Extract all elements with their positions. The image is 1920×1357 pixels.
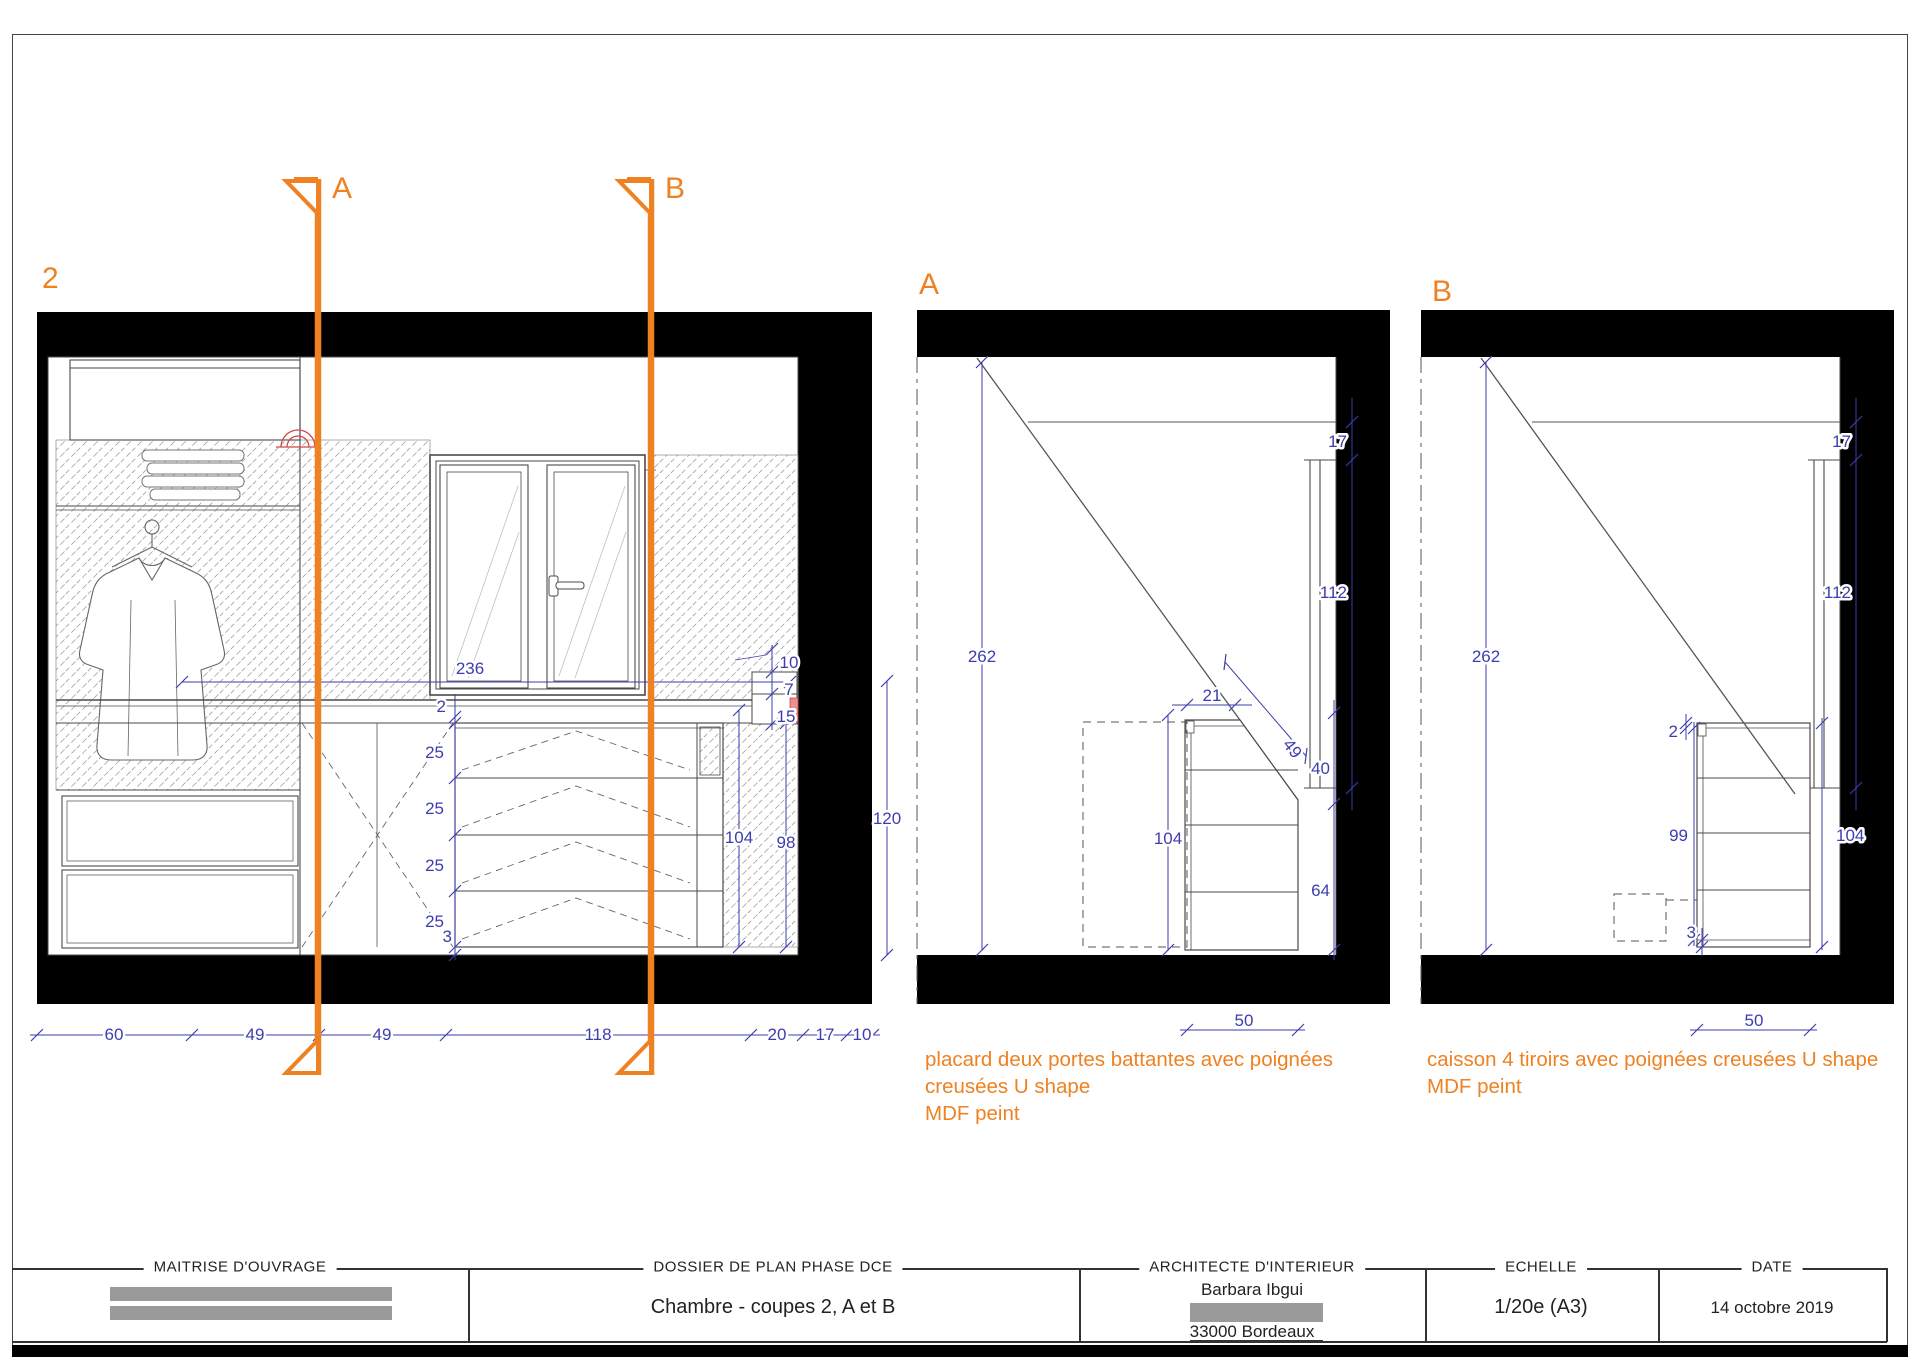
dim-drawer-1: 25	[425, 743, 444, 762]
section2-label: 2	[42, 262, 59, 296]
dim-sill-height: 120	[873, 809, 901, 828]
sectionA-note-line1: placard deux portes battantes avec poign…	[925, 1046, 1333, 1073]
b-dim-99: 99	[1669, 826, 1688, 845]
b-dim-50: 50	[1745, 1011, 1764, 1030]
tb-architect-redacted	[1190, 1303, 1323, 1322]
a-side-panel	[1304, 460, 1336, 788]
dim-drawer-3: 25	[425, 856, 444, 875]
tb-sheet-title: Chambre - coupes 2, A et B	[651, 1296, 896, 1319]
tb-bottom-bar	[12, 1345, 1908, 1357]
wall-right-band	[798, 312, 872, 1004]
section-B-drawing: 262 17 112 2 99 104 3 50	[1421, 310, 1894, 1036]
dim-bottom-gap: 3	[443, 927, 452, 946]
b-handle-notch	[1698, 724, 1706, 736]
b-dim-3: 3	[1687, 923, 1696, 942]
tb-architect-header: ARCHITECTE D'INTERIEUR	[1139, 1259, 1365, 1276]
a-dim-40: 40	[1311, 759, 1330, 778]
drawing-canvas: 236 2 25 25 25 25 3 10 7 15 104 98 120 6…	[0, 0, 1920, 1357]
dim-b6: 10	[853, 1025, 872, 1044]
dim-b1: 49	[246, 1025, 265, 1044]
tb-divider-3	[1425, 1268, 1427, 1342]
cut-a-top-flag	[286, 181, 318, 214]
sectionB-note-line1: caisson 4 tiroirs avec poignées creusées…	[1427, 1046, 1878, 1073]
b-sloped-ceiling	[1481, 358, 1795, 794]
tb-scale-header: ECHELLE	[1495, 1259, 1587, 1276]
tb-architect-city: 33000 Bordeaux	[1190, 1322, 1315, 1342]
cut-b-bottom-flag	[619, 1040, 651, 1073]
floor-band	[37, 955, 872, 1004]
a-corner-cabinet	[1185, 720, 1298, 950]
sectionA-note-line3: MDF peint	[925, 1100, 1333, 1127]
a-dim-104: 104	[1154, 829, 1182, 848]
b-side-panel	[1808, 460, 1840, 788]
dim-top-gap: 2	[437, 697, 446, 716]
dim-b2: 49	[373, 1025, 392, 1044]
cut-a-label: A	[332, 172, 352, 206]
a-dim-height: 262	[968, 647, 996, 666]
upper-cabinet	[70, 360, 300, 440]
b-drawer-cabinet	[1697, 723, 1810, 947]
cut-b-label: B	[665, 172, 685, 206]
section-2-drawing: 236 2 25 25 25 25 3 10 7 15 104 98 120 6…	[30, 312, 901, 1044]
dim-b5: 17	[816, 1025, 835, 1044]
sectionB-label: B	[1432, 275, 1452, 309]
b-hidden-volume	[1614, 894, 1697, 941]
b-dim-104: 104	[1836, 826, 1864, 845]
chest-of-drawers	[455, 723, 723, 947]
a-dim-50: 50	[1235, 1011, 1254, 1030]
dim-b3: 118	[584, 1025, 611, 1044]
dim-niche-15: 15	[777, 707, 796, 726]
wall-top-band	[37, 312, 872, 357]
tb-date-header: DATE	[1742, 1259, 1803, 1276]
tb-divider-2	[1079, 1268, 1081, 1342]
sectionA-note-line2: creusées U shape	[925, 1073, 1333, 1100]
a-right-wall	[1336, 310, 1390, 1004]
tb-owner-redacted-2	[110, 1306, 392, 1320]
tb-divider-5	[1886, 1268, 1888, 1342]
cut-a-bottom-flag	[286, 1040, 318, 1073]
dim-b4: 20	[768, 1025, 787, 1044]
b-dim-17: 17	[1832, 432, 1851, 451]
dim-counter-height: 104	[725, 828, 753, 847]
cut-b-top-flag	[619, 181, 651, 214]
tb-dossier-header: DOSSIER DE PLAN PHASE DCE	[643, 1259, 902, 1276]
sectionA-note: placard deux portes battantes avec poign…	[925, 1046, 1333, 1127]
tb-owner-redacted-1	[110, 1287, 392, 1301]
tb-architect-underline	[1190, 1340, 1323, 1342]
section-A-drawing: 262 17 112 40 64 21 49 104 50	[917, 310, 1390, 1036]
b-dim-height: 262	[1472, 647, 1500, 666]
b-floor-band	[1421, 955, 1894, 1004]
tb-divider-4	[1658, 1268, 1660, 1342]
a-dim-49: 49	[1279, 735, 1306, 762]
b-right-wall	[1840, 310, 1894, 1004]
a-dim-21: 21	[1203, 686, 1222, 705]
tb-scale-value: 1/20e (A3)	[1494, 1296, 1587, 1319]
hatch-right-of-window	[650, 455, 798, 700]
sectionB-note: caisson 4 tiroirs avec poignées creusées…	[1427, 1046, 1878, 1100]
tb-architect-name: Barbara Ibgui	[1201, 1280, 1303, 1300]
b-top-band	[1421, 310, 1894, 357]
a-floor-band	[917, 955, 1390, 1004]
b-dim-112: 112	[1824, 583, 1851, 602]
sectionA-label: A	[919, 268, 939, 302]
a-top-band	[917, 310, 1390, 357]
a-dim-112: 112	[1320, 583, 1347, 602]
tb-bottom-rule	[12, 1341, 1887, 1343]
dim-b0: 60	[105, 1025, 124, 1044]
tb-date-value: 14 octobre 2019	[1711, 1298, 1834, 1318]
dim-drawer-4: 25	[425, 912, 444, 931]
a-dim-17: 17	[1328, 432, 1347, 451]
tb-owner-header: MAITRISE D'OUVRAGE	[144, 1259, 337, 1276]
sectionA-dimensions	[976, 356, 1358, 1036]
plan-sheet: 236 2 25 25 25 25 3 10 7 15 104 98 120 6…	[0, 0, 1920, 1357]
wall-left-band	[37, 312, 48, 1004]
dim-niche-10: 10	[780, 653, 799, 672]
dim-drawer-2: 25	[425, 799, 444, 818]
a-dim-64: 64	[1311, 881, 1330, 900]
dim-chest-height: 98	[777, 833, 796, 852]
b-dim-2: 2	[1669, 722, 1678, 741]
tb-divider-1	[468, 1268, 470, 1342]
sectionB-note-line2: MDF peint	[1427, 1073, 1878, 1100]
dim-counter-width: 236	[456, 659, 484, 678]
dim-niche-7: 7	[784, 680, 793, 699]
